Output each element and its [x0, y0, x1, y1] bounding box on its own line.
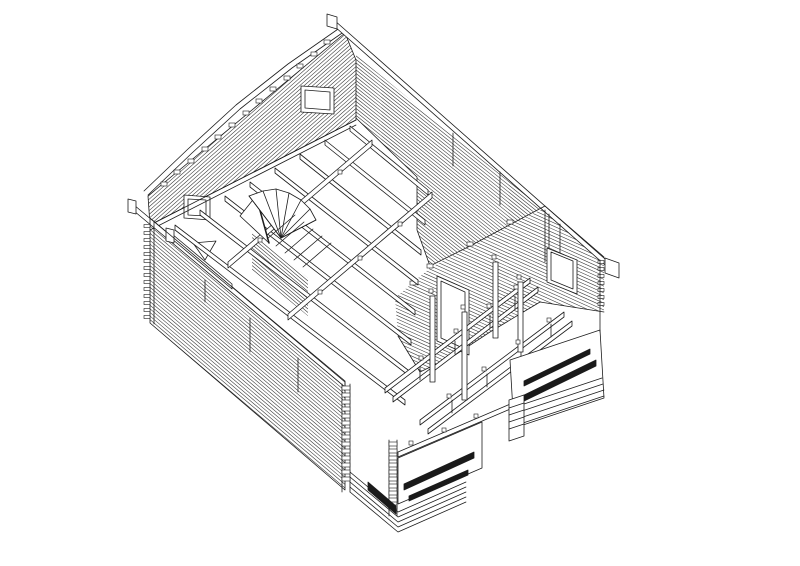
ridge-beam-cap: [327, 14, 337, 29]
porch-post-1: [430, 296, 435, 382]
stair-step-4: [294, 236, 322, 260]
porch-post-2: [462, 312, 467, 400]
drawing-canvas: [0, 0, 800, 566]
ridge-beam-end-cap: [605, 258, 619, 278]
floor-beam-overhang-cap: [166, 228, 174, 243]
southwest-corner-log-ticks: [144, 225, 150, 319]
floor-joist-1: [350, 126, 428, 195]
southwest-wall-logs: [150, 53, 345, 566]
parapet-corner-log-ticks: [389, 442, 397, 509]
porch-post-3: [493, 262, 498, 338]
wall-plate-beam-cap: [128, 199, 136, 214]
axonometric-timber-house-drawing: [0, 0, 800, 566]
stair-step-5: [303, 243, 331, 267]
east-corner-log-ticks: [598, 261, 604, 306]
near-corner-log-ticks: [342, 386, 350, 481]
